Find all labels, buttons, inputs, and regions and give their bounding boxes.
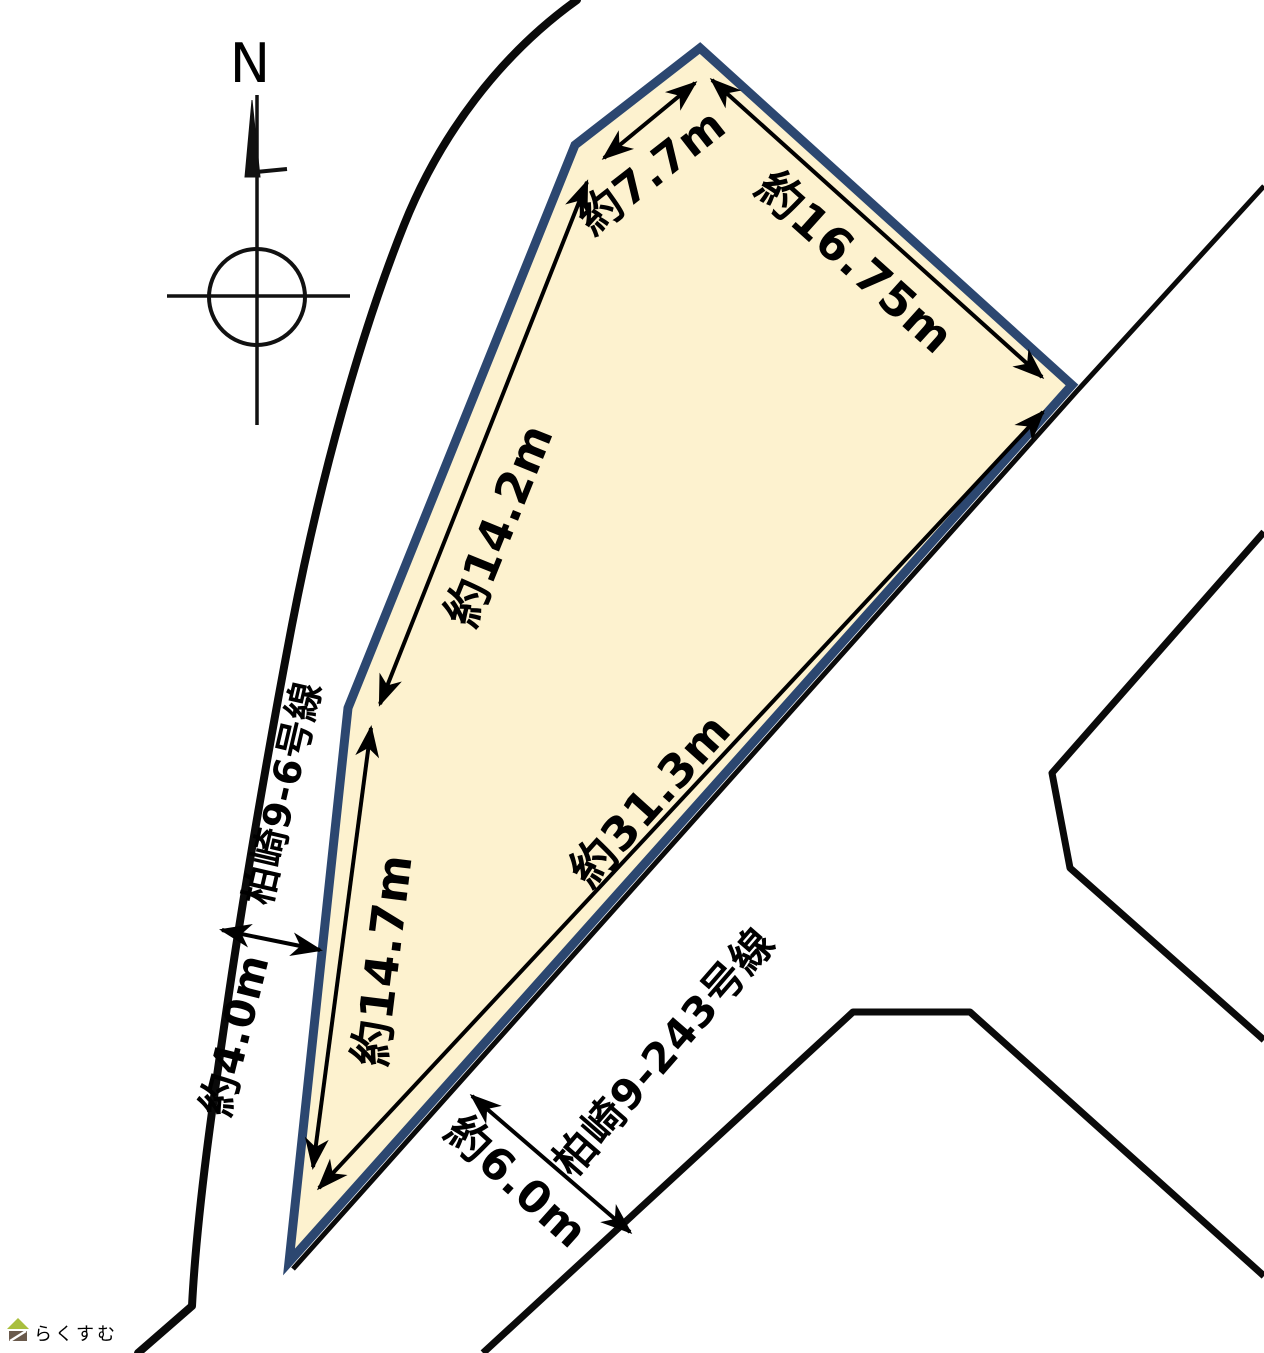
land-plot-diagram: 約7.7m 約16.75m 約14.2m 約14.7m 約31.3m 約4.0m… (0, 0, 1264, 1353)
watermark-text: らくすむ (34, 1324, 118, 1345)
compass-north-label: N (230, 32, 270, 95)
